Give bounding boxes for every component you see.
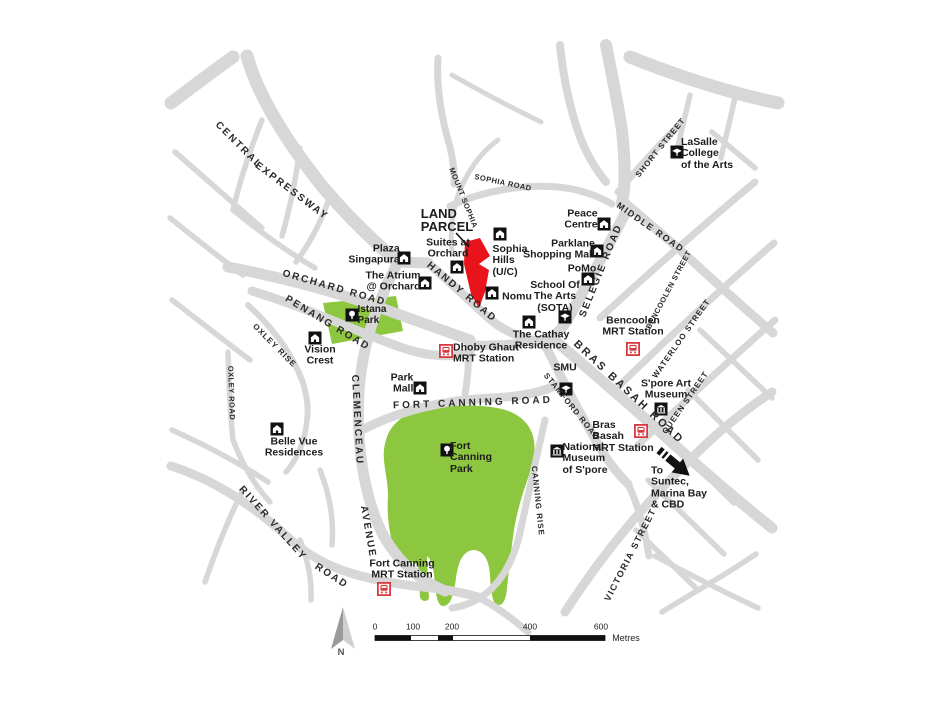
place-label-sota: School Of The Arts (SOTA) xyxy=(530,280,580,314)
building-icon-suites-at-orchard xyxy=(451,261,464,274)
place-label-to-suntec: To Suntec, Marina Bay & CBD xyxy=(651,465,707,510)
station-label-fort-canning: Fort Canning MRT Station xyxy=(369,559,434,582)
building-icon-park-mall xyxy=(414,382,427,395)
building-icon-vision-crest xyxy=(309,332,322,345)
place-label-belle-vue: Belle Vue Residences xyxy=(265,437,323,460)
place-label-park-mall: Park Mall xyxy=(391,373,414,396)
map-canvas: CENTRAL EXPRESSWAY ORCHARD ROAD PENANG R… xyxy=(0,0,943,717)
scale-tick-600: 600 xyxy=(594,622,608,631)
building-icon-nomu xyxy=(486,287,499,300)
building-icon-sophia-hills xyxy=(494,228,507,241)
mrt-icon-fort-canning xyxy=(378,583,390,595)
building-icon-cathay-residence xyxy=(523,316,536,329)
scale-tick-0: 0 xyxy=(373,622,378,631)
scale-bar xyxy=(375,636,605,641)
place-label-cathay: The Cathay Residence xyxy=(513,330,570,353)
station-label-dhoby-ghaut: Dhoby Ghaut MRT Station xyxy=(453,343,519,366)
building-icon-belle-vue xyxy=(271,423,284,436)
road-corner-stub xyxy=(171,57,233,103)
road-loop-right xyxy=(560,45,606,182)
place-label-nomu: Nomu xyxy=(502,291,532,302)
place-label-art-museum: S'pore Art Museum xyxy=(641,379,691,402)
scale-tick-100: 100 xyxy=(406,622,420,631)
place-label-pomo: PoMo xyxy=(568,263,597,274)
place-label-peace-centre: Peace Centre xyxy=(564,209,597,232)
place-label-parklane: Parklane Shopping Mall xyxy=(523,239,595,262)
place-label-istana-park: Istana Park xyxy=(358,305,387,327)
station-label-bras-basah: Bras Basah MRT Station xyxy=(592,420,653,454)
north-arrow-icon xyxy=(331,607,355,649)
place-label-vision-crest: Vision Crest xyxy=(304,345,335,368)
scale-tick-400: 400 xyxy=(523,622,537,631)
land-parcel-label: LAND PARCEL xyxy=(421,207,473,233)
place-label-suites-at-orchard: Suites at Orchard xyxy=(426,238,470,261)
place-label-lasalle: LaSalle College of the Arts xyxy=(681,137,733,171)
tree-icon-istana-park xyxy=(346,309,359,322)
mrt-icon-bencoolen xyxy=(627,343,639,355)
station-label-bencoolen: Bencoolen MRT Station xyxy=(602,316,663,339)
road-top-right-band xyxy=(630,57,778,103)
scale-tick-200: 200 xyxy=(445,622,459,631)
road-label-oxley-road: OXLEY ROAD xyxy=(226,366,236,421)
building-icon-peace-centre xyxy=(598,218,611,231)
place-label-atrium: The Atrium @ Orchard xyxy=(365,271,420,294)
scale-unit: Metres xyxy=(612,634,640,644)
mrt-icon-dhoby-ghaut xyxy=(440,345,452,357)
road-loop-diagonal xyxy=(452,75,541,122)
north-label: N xyxy=(338,648,345,658)
place-label-smu: SMU xyxy=(553,362,576,373)
road-central-expressway xyxy=(247,56,398,262)
place-label-fort-canning-park: Fort Canning Park xyxy=(450,441,492,475)
place-label-plaza-singapura: Plaza Singapura xyxy=(348,244,399,267)
